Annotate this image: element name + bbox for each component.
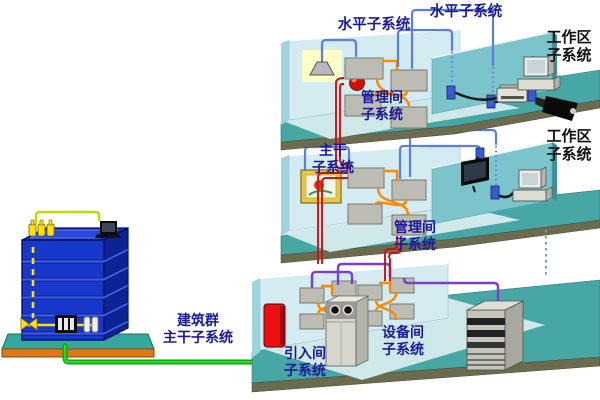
wall-picture-icon (301, 170, 341, 203)
floor-middle (281, 130, 600, 264)
rooftop-devices (29, 220, 54, 236)
server-rack-icon (467, 301, 523, 370)
wall-outlet-icon (487, 95, 495, 108)
wall-outlet-icon (491, 186, 499, 199)
pbx-cabinet-icon (326, 296, 368, 366)
rooftop-cable (36, 212, 99, 224)
floor-bottom (252, 258, 600, 392)
building-tower (21, 212, 128, 340)
entrance-protector-icon (264, 304, 285, 347)
wall-outlet-icon (447, 86, 455, 99)
desktop-computer-icon (513, 167, 552, 201)
building-icon (2, 212, 154, 357)
structured-cabling-diagram: 水平子系统 水平子系统 工作区 子系统 管理间 子系统 工作区 子系统 主干 子… (0, 0, 600, 400)
desktop-computer-icon (518, 54, 560, 90)
